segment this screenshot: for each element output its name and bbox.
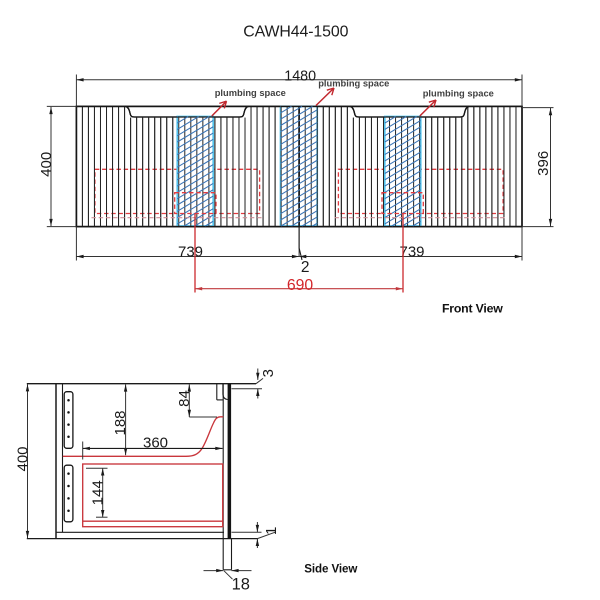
svg-text:400: 400	[38, 152, 55, 177]
svg-text:1: 1	[263, 527, 280, 535]
svg-text:400: 400	[14, 446, 31, 471]
svg-text:690: 690	[287, 277, 314, 294]
svg-text:360: 360	[143, 434, 168, 451]
svg-text:plumbing space: plumbing space	[318, 78, 389, 88]
svg-text:3: 3	[260, 369, 277, 377]
svg-text:84: 84	[176, 390, 193, 407]
svg-text:Side View: Side View	[304, 562, 358, 575]
svg-text:plumbing space: plumbing space	[423, 89, 494, 99]
svg-text:144: 144	[90, 480, 107, 505]
svg-text:2: 2	[301, 259, 310, 276]
svg-text:188: 188	[112, 410, 129, 435]
svg-text:739: 739	[178, 243, 203, 260]
svg-text:plumbing space: plumbing space	[215, 88, 286, 98]
svg-text:18: 18	[232, 575, 250, 593]
svg-text:1480: 1480	[284, 68, 316, 84]
svg-text:396: 396	[535, 151, 552, 176]
svg-text:CAWH44-1500: CAWH44-1500	[243, 24, 348, 41]
svg-text:Front View: Front View	[442, 301, 503, 315]
